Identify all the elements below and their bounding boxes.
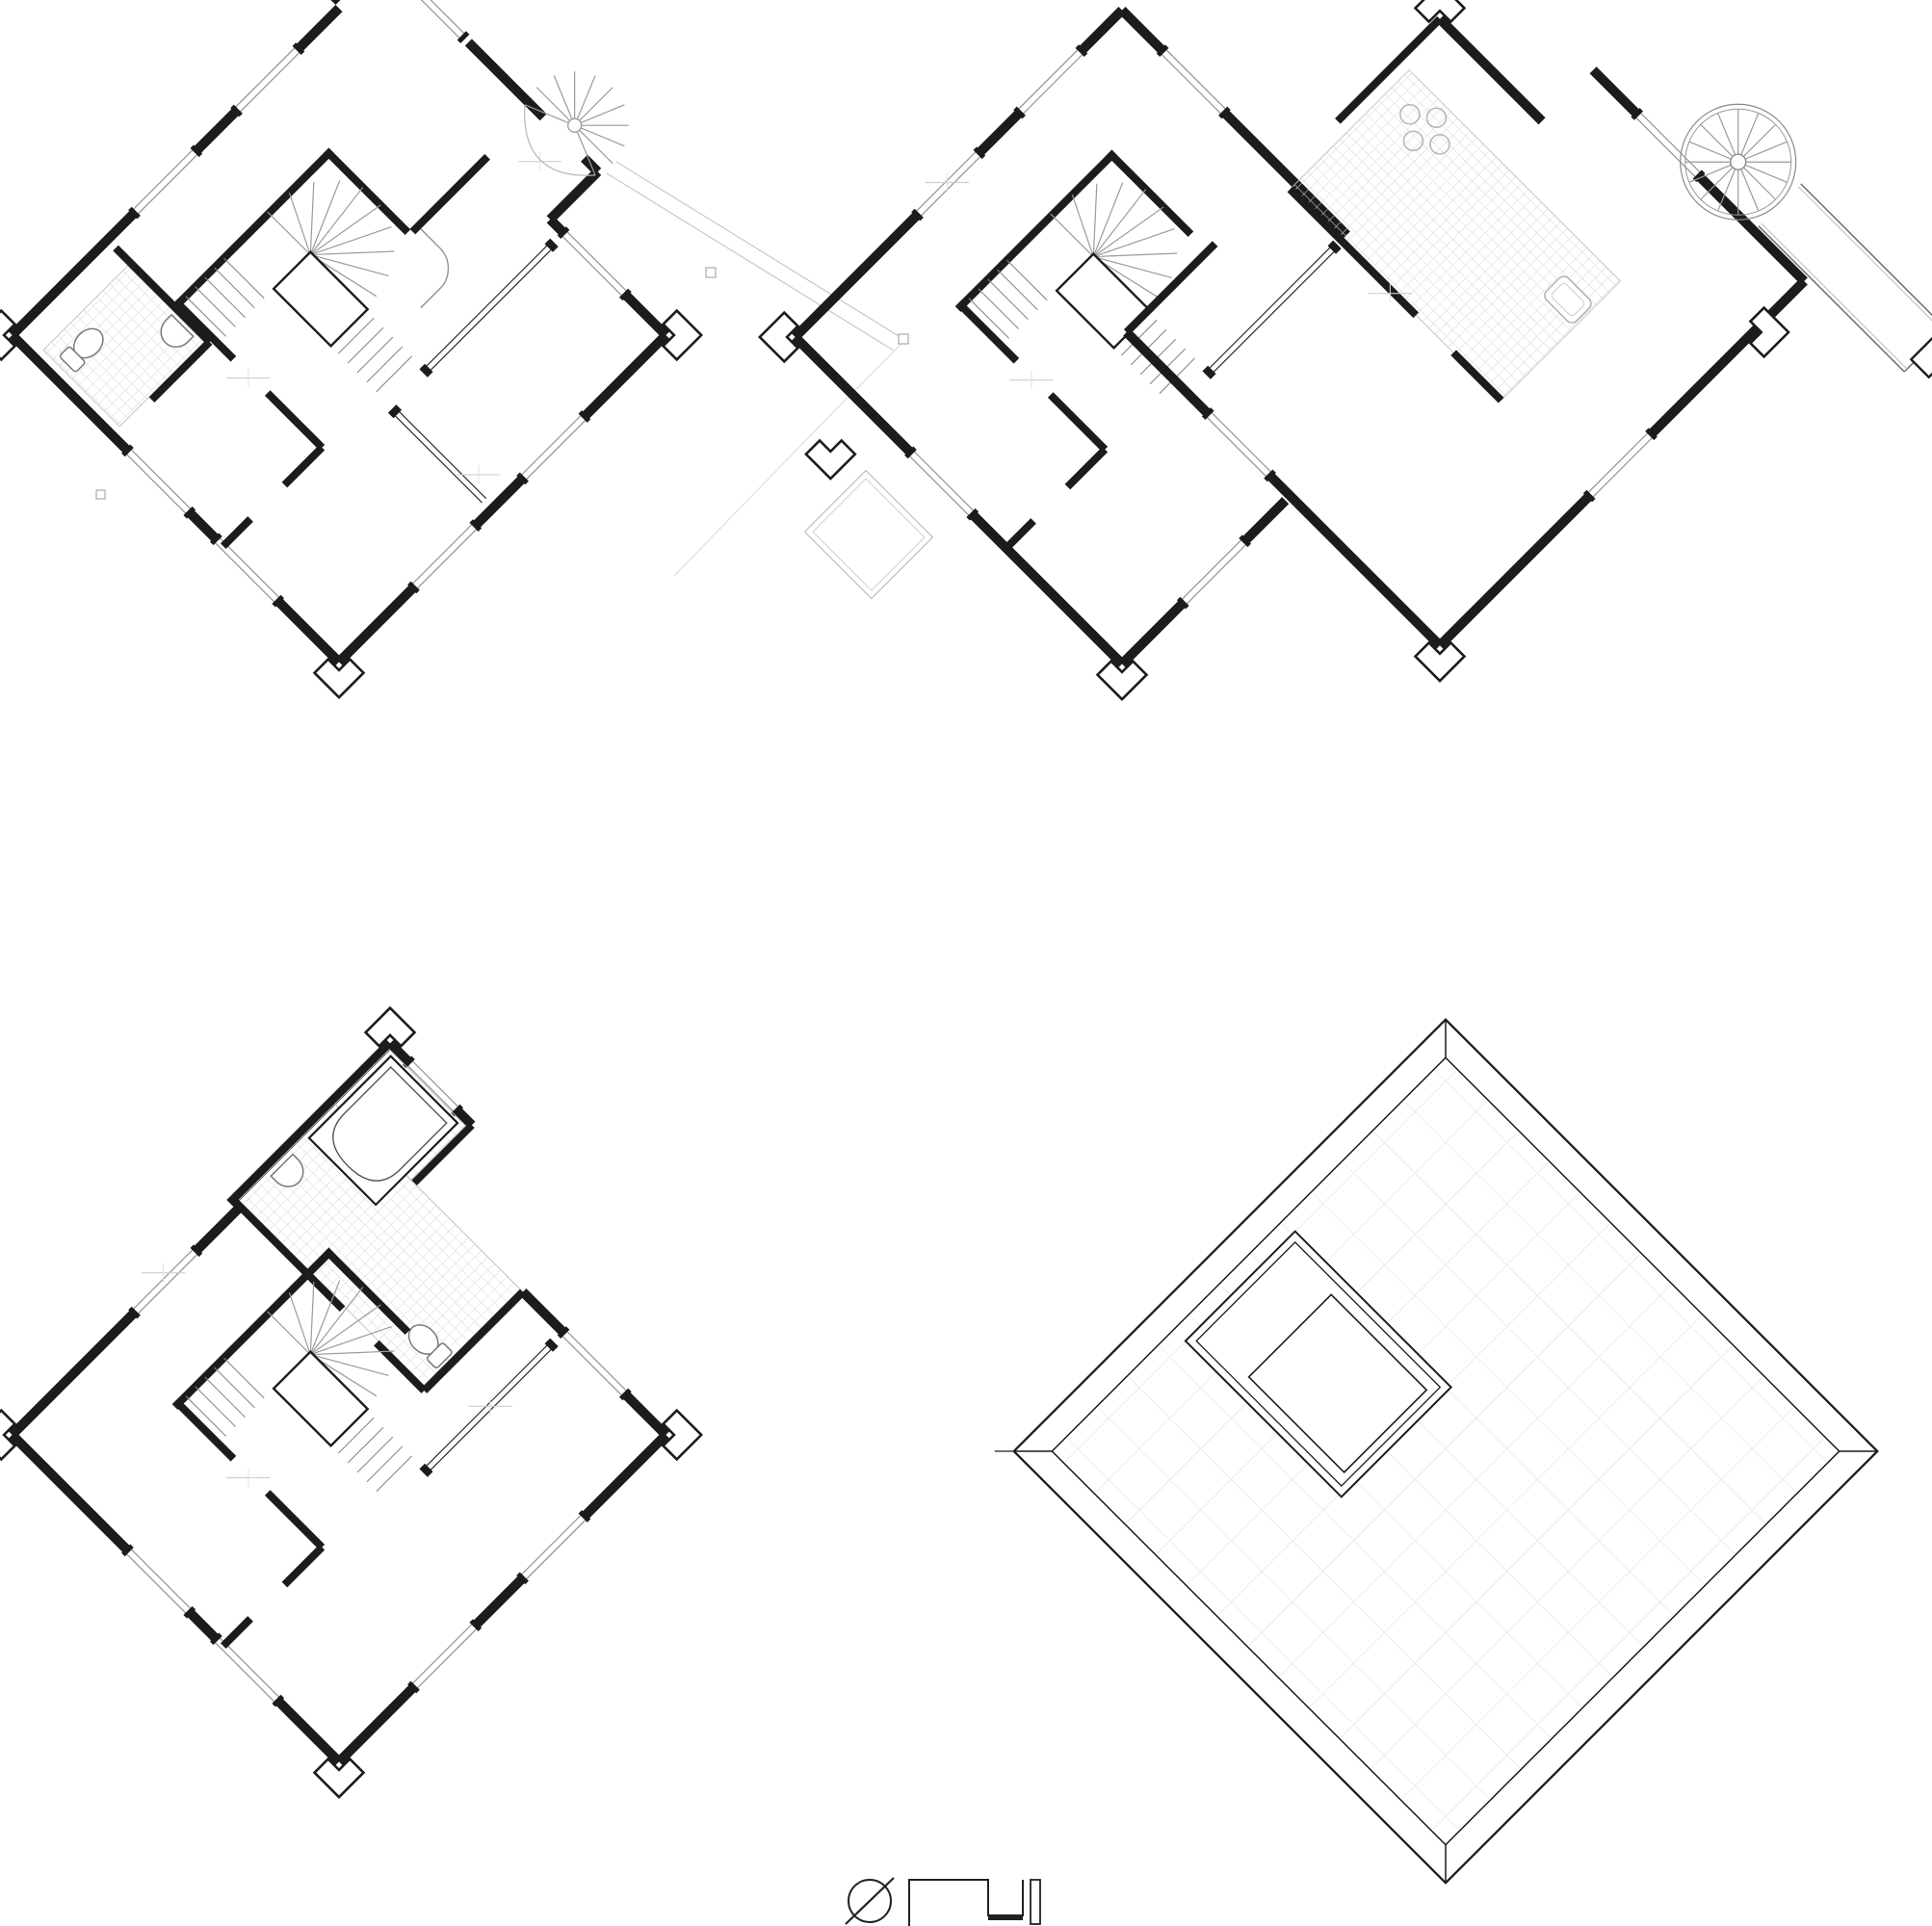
window: [395, 0, 470, 43]
window: [1631, 108, 1706, 183]
window: [557, 1326, 632, 1401]
window: [1202, 407, 1277, 482]
balcony-end-block: [1911, 323, 1932, 377]
window: [121, 1544, 196, 1619]
door-axis-tick: [457, 453, 500, 496]
balcony-railing: [1759, 184, 1932, 372]
roof-paving-grid: [1055, 1060, 1837, 1842]
terrace-ghost-outline: [96, 162, 908, 576]
porch-block: [806, 429, 855, 479]
door-axis-tick: [226, 356, 270, 400]
door-swing: [381, 229, 460, 308]
window: [407, 519, 483, 594]
window: [1177, 534, 1252, 610]
spiral-staircase: [502, 49, 651, 198]
door-axis-tick: [226, 1456, 270, 1499]
door-axis-tick: [1009, 358, 1053, 402]
roof-plan: [995, 1010, 1877, 1892]
window: [904, 446, 979, 521]
window: [1582, 428, 1658, 503]
window: [1013, 44, 1088, 119]
drawing-canvas: [0, 0, 1932, 1926]
window: [121, 444, 196, 519]
window: [407, 1619, 483, 1694]
chimney-corner-block: [1416, 0, 1465, 33]
parapet-corner-tick: [995, 1442, 1014, 1461]
window: [516, 410, 591, 485]
window: [1156, 44, 1231, 119]
upper-right-kitchen-wing: [1091, 0, 1932, 773]
floor-plan-lower-left: [0, 1008, 759, 1798]
scale-profile-icon: [909, 1880, 1040, 1926]
window: [516, 1510, 591, 1585]
winder-staircase: [955, 150, 1258, 453]
window: [128, 1244, 203, 1319]
window: [230, 42, 305, 117]
porch-terrace: [804, 471, 932, 599]
floor-plan-upper-left: [0, 0, 781, 697]
window: [557, 226, 632, 301]
architectural-drawing-sheet: [0, 0, 1932, 1926]
upper-right-main-volume: [685, 0, 1472, 774]
door-axis-tick: [468, 1385, 511, 1428]
door-axis-tick: [518, 140, 561, 183]
window: [128, 144, 203, 220]
floor-plan-upper-right: [685, 0, 1932, 774]
circle-slash-icon: [846, 1878, 894, 1924]
window: [911, 146, 986, 221]
